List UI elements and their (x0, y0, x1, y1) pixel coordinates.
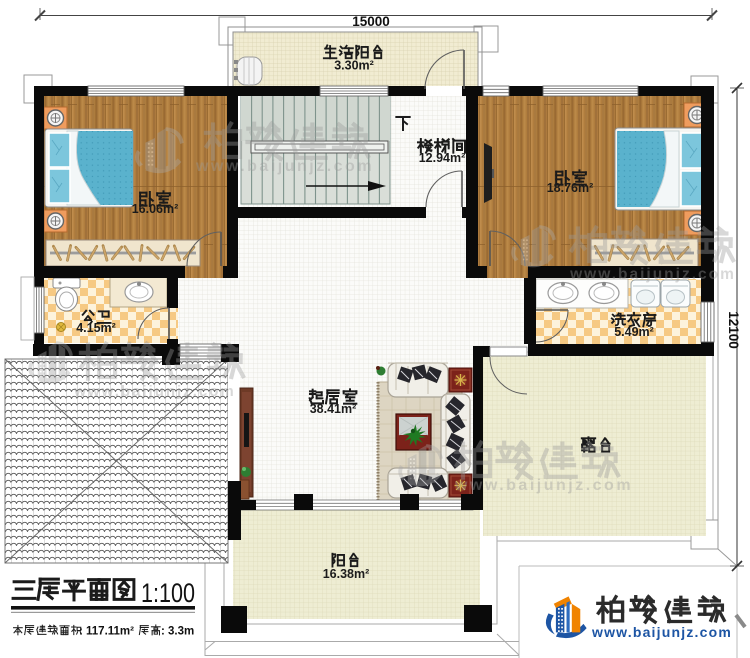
svg-text:38.41m²: 38.41m² (310, 402, 357, 416)
svg-text:16.06m²: 16.06m² (132, 202, 179, 216)
svg-text:www.baijunjz.com: www.baijunjz.com (569, 266, 736, 283)
svg-text:3.30m²: 3.30m² (334, 59, 374, 73)
svg-text:www.baijunjz.com: www.baijunjz.com (454, 477, 633, 494)
svg-text:: 3.3m: : 3.3m (161, 626, 194, 638)
svg-text:www.baijunjz.com: www.baijunjz.com (73, 383, 235, 400)
svg-text:4.15m²: 4.15m² (76, 321, 116, 335)
svg-text:12.94m²: 12.94m² (419, 151, 466, 165)
svg-text:www.baijunjz.com: www.baijunjz.com (195, 158, 374, 175)
svg-text:: 117.11m²: : 117.11m² (79, 626, 134, 638)
svg-text:18.76m²: 18.76m² (547, 181, 594, 195)
svg-text:1:100: 1:100 (141, 578, 195, 608)
svg-text:www.baijunjz.com: www.baijunjz.com (591, 624, 732, 640)
svg-text:12100: 12100 (726, 311, 741, 349)
svg-text:5.49m²: 5.49m² (614, 325, 654, 339)
svg-text:16.38m²: 16.38m² (323, 567, 370, 581)
svg-text:15000: 15000 (352, 14, 390, 29)
